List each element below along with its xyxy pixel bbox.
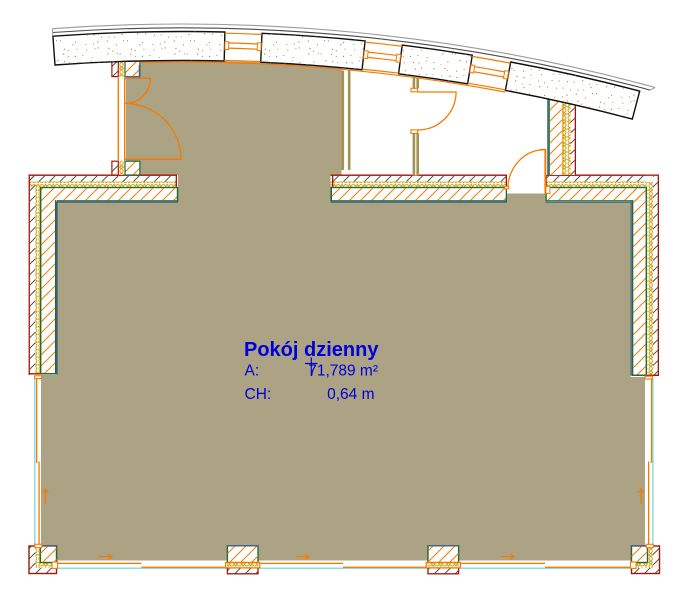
svg-text:0,64 m: 0,64 m xyxy=(327,386,374,403)
svg-text:CH:: CH: xyxy=(245,386,272,403)
svg-text:A:: A: xyxy=(245,363,260,380)
svg-text:71,789 m²: 71,789 m² xyxy=(308,363,378,380)
